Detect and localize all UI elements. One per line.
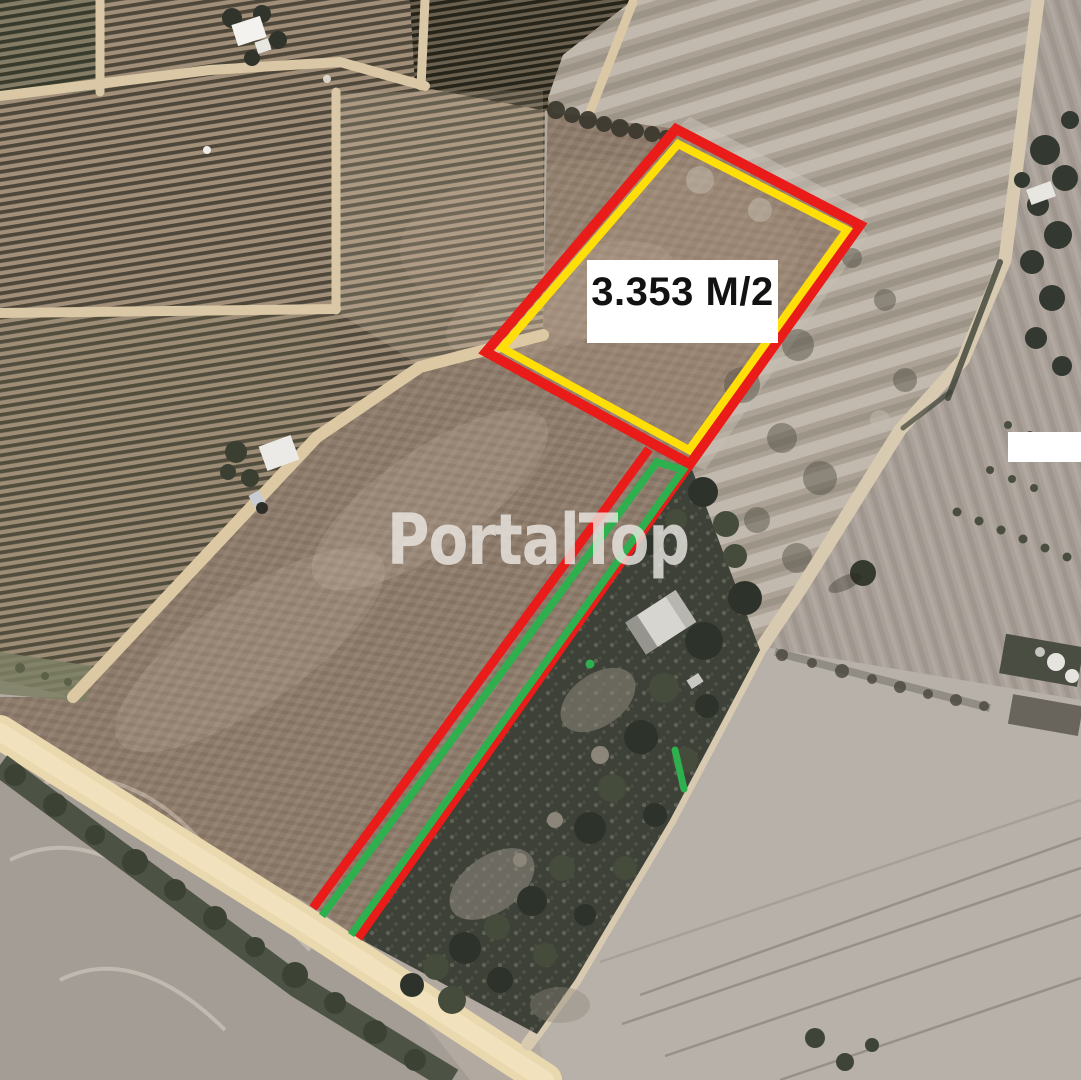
aerial-property-photo: PortalTop 3.353 M/2 bbox=[0, 0, 1081, 1080]
green-marker-dot bbox=[586, 660, 595, 669]
area-label-text: 3.353 M/2 bbox=[591, 270, 773, 315]
area-label: 3.353 M/2 bbox=[587, 260, 778, 343]
aerial-scene bbox=[0, 0, 1081, 1080]
masked-patch bbox=[1008, 432, 1081, 462]
